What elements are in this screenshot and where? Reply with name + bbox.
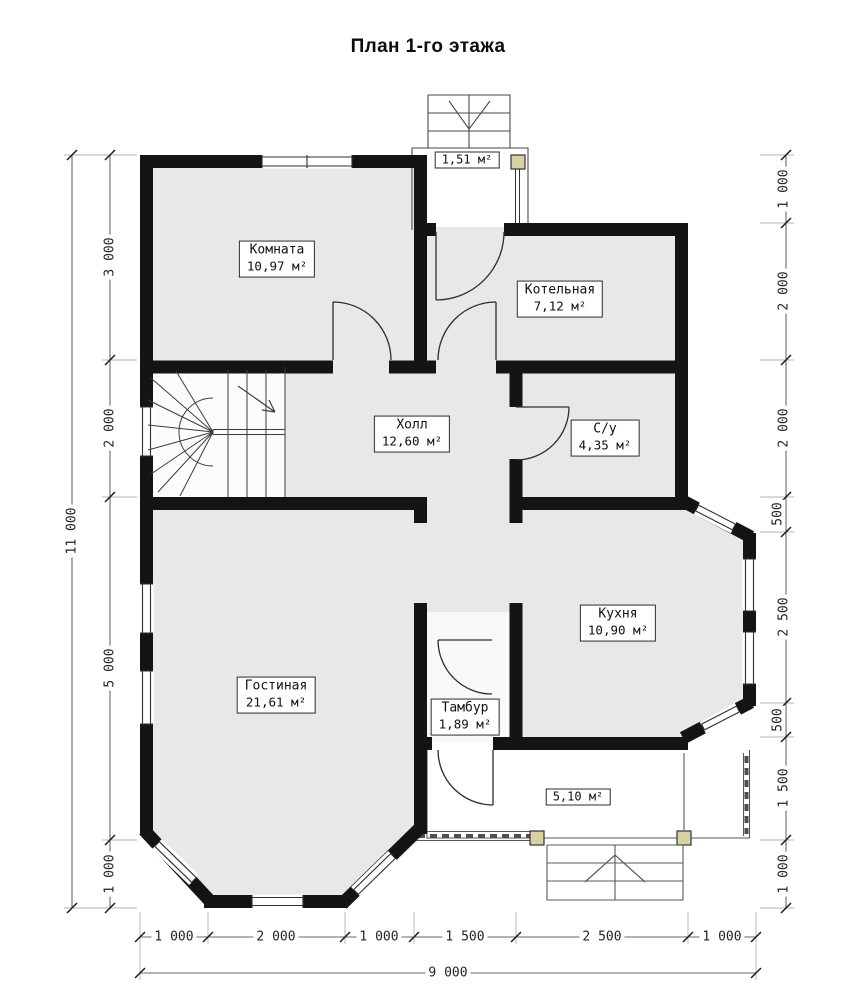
dim-bottom-0: 1 000 [151,930,196,945]
room-area: 10,97 м² [247,259,307,275]
dim-right-1: 2 000 [777,268,792,313]
dim-left-2: 5 000 [103,645,118,690]
porch-post [511,155,525,169]
stairwell-floor [146,368,285,499]
porch-steps [428,95,510,148]
room-label-kuhnya: Кухня 10,90 м² [580,605,656,642]
dim-left-0: 3 000 [103,234,118,279]
room-fills [144,158,753,906]
terrace-post-left [530,831,544,845]
room-label-gostinaya: Гостиная 21,61 м² [237,677,316,714]
room-area: 7,12 м² [525,299,595,315]
porch-area-label: 1,51 м² [435,152,500,169]
room-name: Кухня [588,607,648,623]
room-name: Котельная [525,283,595,299]
page-title: План 1-го этажа [351,36,506,58]
dim-right-4: 2 500 [777,594,792,639]
room-name: Комната [247,243,307,259]
dim-right-3: 500 [771,499,786,528]
dim-bottom-5: 1 000 [699,930,744,945]
room-area: 10,90 м² [588,623,648,639]
room-name: Гостиная [245,679,308,695]
floor-plan-drawing [0,0,857,1000]
dim-bottom-3: 1 500 [442,930,487,945]
dim-left-3: 1 000 [103,851,118,896]
room-label-tambur: Тамбур 1,89 м² [431,699,500,736]
porch-post-rail [516,169,520,225]
room-label-kotelnaya: Котельная 7,12 м² [517,281,603,318]
dim-left-total: 11 000 [65,505,80,558]
dim-bottom-total: 9 000 [425,966,470,981]
dim-bottom-2: 1 000 [356,930,401,945]
room-area: 12,60 м² [382,434,442,450]
dim-left-1: 2 000 [103,405,118,450]
dim-right-6: 1 500 [777,765,792,810]
dim-right-0: 1 000 [777,166,792,211]
room-label-holl: Холл 12,60 м² [374,416,450,453]
room-area: 4,35 м² [579,438,632,454]
room-name: Тамбур [439,701,492,717]
room-area: 1,89 м² [439,717,492,733]
dim-right-7: 1 000 [777,851,792,896]
terrace-post-right [677,831,691,845]
terrace-area-label: 5,10 м² [546,789,611,806]
room-name: С/у [579,422,632,438]
dim-bottom-4: 2 500 [579,930,624,945]
dim-right-5: 500 [771,705,786,734]
room-label-komnata: Комната 10,97 м² [239,241,315,278]
dim-bottom-1: 2 000 [253,930,298,945]
room-area: 21,61 м² [245,695,308,711]
room-label-su: С/у 4,35 м² [571,420,640,457]
floor-plan-page: План 1-го этажа Комната 10,97 м² Котельн… [0,0,857,1000]
terrace-steps [547,845,683,900]
room-name: Холл [382,418,442,434]
terrace [416,750,750,900]
dim-right-2: 2 000 [777,405,792,450]
